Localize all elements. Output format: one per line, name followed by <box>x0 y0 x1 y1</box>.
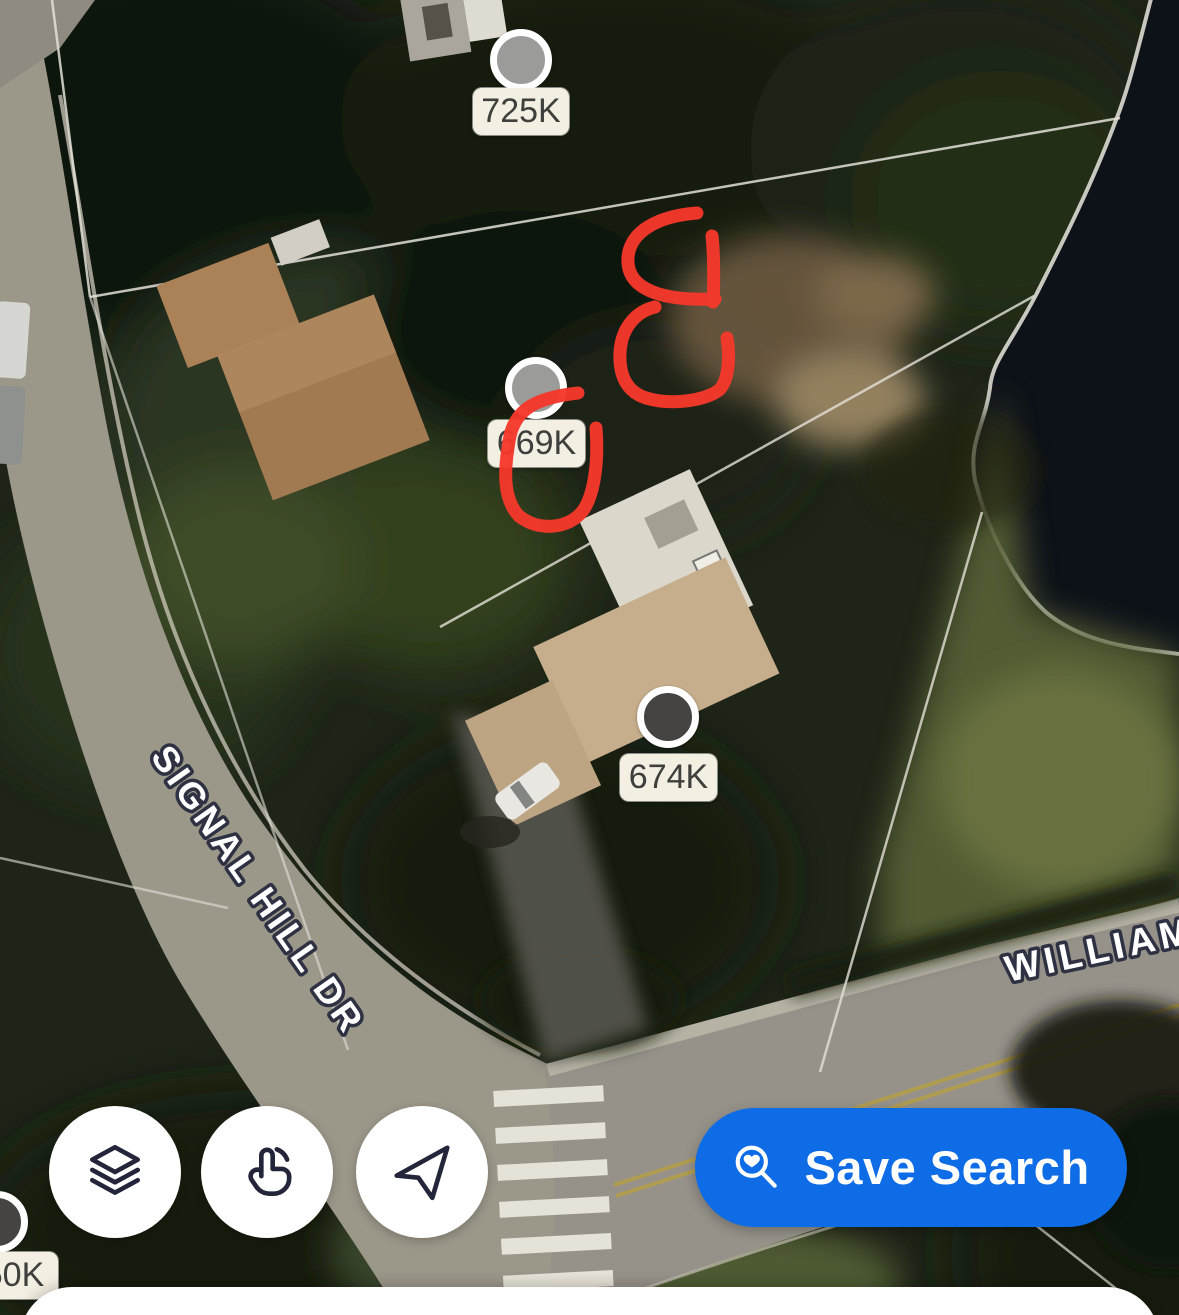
marker-price-label[interactable]: 725K <box>473 88 569 135</box>
marker-price-label[interactable]: 674K <box>620 754 717 801</box>
search-heart-icon <box>732 1143 782 1193</box>
layers-button[interactable] <box>49 1106 181 1238</box>
app-screen: SIGNAL HILL DR WILLIAM 725K 669K 674K 50… <box>0 0 1179 1315</box>
marker-price-label[interactable]: 669K <box>488 420 585 467</box>
locate-button[interactable] <box>356 1106 488 1238</box>
marker-dot[interactable] <box>637 686 699 748</box>
draw-button[interactable] <box>201 1106 333 1238</box>
marker-dot[interactable] <box>490 29 552 91</box>
bottom-sheet-handle[interactable] <box>20 1287 1159 1315</box>
draw-hand-icon <box>234 1139 300 1205</box>
layers-icon <box>82 1139 148 1205</box>
locate-arrow-icon <box>389 1139 455 1205</box>
save-search-button[interactable]: Save Search <box>695 1108 1127 1227</box>
marker-dot[interactable] <box>505 357 567 419</box>
car-shadow <box>460 816 520 848</box>
save-search-label: Save Search <box>804 1140 1089 1195</box>
